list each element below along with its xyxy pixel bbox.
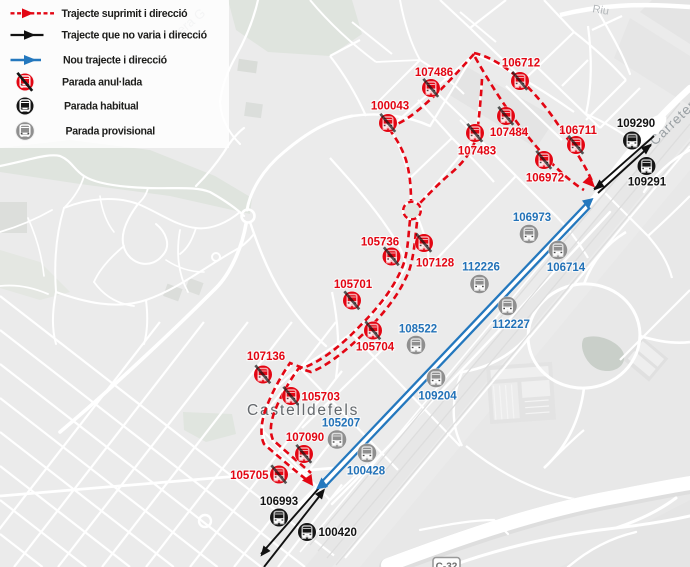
svg-text:Trajecte que no varia i direcc: Trajecte que no varia i direcció <box>62 30 208 42</box>
svg-text:Nou trajecte i direcció: Nou trajecte i direcció <box>63 55 168 67</box>
svg-text:Trajecte suprimit i direcció: Trajecte suprimit i direcció <box>62 8 189 20</box>
svg-text:105207: 105207 <box>322 418 360 430</box>
svg-text:112226: 112226 <box>462 262 500 274</box>
svg-text:C-32: C-32 <box>436 562 458 567</box>
svg-text:106712: 106712 <box>502 58 540 70</box>
svg-text:107136: 107136 <box>247 351 285 363</box>
svg-text:109204: 109204 <box>418 391 457 403</box>
svg-text:105701: 105701 <box>334 279 373 291</box>
svg-text:105705: 105705 <box>230 470 269 482</box>
svg-text:109291: 109291 <box>628 177 667 189</box>
svg-text:106973: 106973 <box>513 212 551 224</box>
svg-text:105736: 105736 <box>361 237 399 249</box>
svg-text:100420: 100420 <box>319 527 357 539</box>
svg-text:107484: 107484 <box>490 127 529 139</box>
svg-text:107128: 107128 <box>416 258 455 270</box>
svg-text:112227: 112227 <box>492 319 530 331</box>
svg-text:107486: 107486 <box>415 67 453 79</box>
svg-text:108522: 108522 <box>399 324 437 336</box>
svg-text:100428: 100428 <box>347 466 386 478</box>
svg-text:106714: 106714 <box>547 262 586 274</box>
svg-text:107483: 107483 <box>458 146 496 158</box>
svg-text:106993: 106993 <box>260 496 298 508</box>
svg-text:105704: 105704 <box>356 342 395 354</box>
svg-text:Parada habitual: Parada habitual <box>64 101 139 113</box>
svg-text:107090: 107090 <box>286 432 324 444</box>
svg-text:Parada provisional: Parada provisional <box>66 126 156 138</box>
svg-text:106972: 106972 <box>526 173 564 185</box>
svg-text:Parada anul·lada: Parada anul·lada <box>62 77 142 89</box>
svg-text:105703: 105703 <box>302 392 340 404</box>
svg-text:100043: 100043 <box>371 101 409 113</box>
svg-text:106711: 106711 <box>559 125 597 137</box>
svg-text:109290: 109290 <box>617 118 655 130</box>
